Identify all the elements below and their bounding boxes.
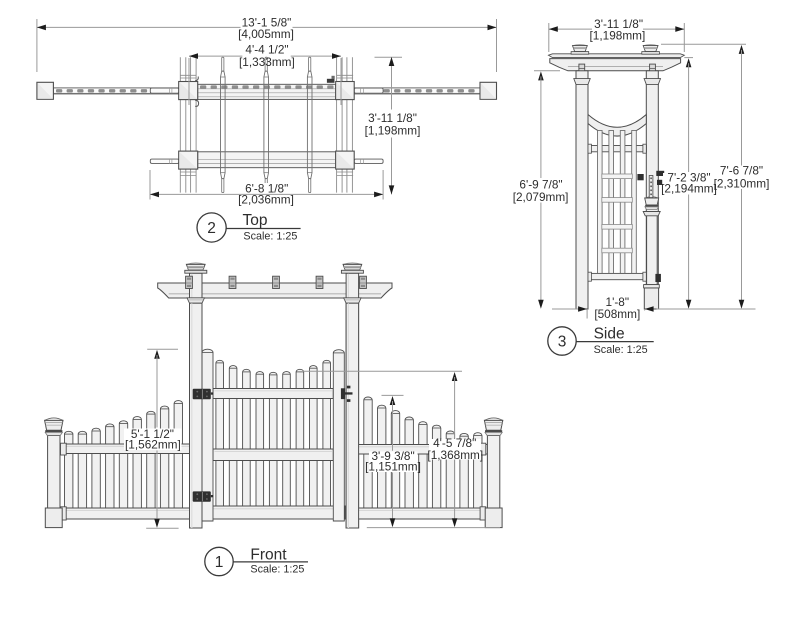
svg-text:[2,079mm]: [2,079mm] <box>513 190 569 204</box>
svg-text:Scale: 1:25: Scale: 1:25 <box>243 230 297 242</box>
svg-text:[1,333mm]: [1,333mm] <box>239 55 295 69</box>
svg-text:[2,194mm]: [2,194mm] <box>661 182 717 196</box>
svg-text:3: 3 <box>558 334 567 351</box>
svg-text:Scale: 1:25: Scale: 1:25 <box>250 564 304 576</box>
svg-text:2: 2 <box>207 220 216 237</box>
svg-text:[1,198mm]: [1,198mm] <box>590 28 646 42</box>
svg-text:1: 1 <box>215 554 224 571</box>
svg-text:Scale: 1:25: Scale: 1:25 <box>594 344 648 356</box>
svg-text:[1,368mm]: [1,368mm] <box>427 448 483 462</box>
svg-text:Top: Top <box>243 212 268 229</box>
svg-text:[1,562mm]: [1,562mm] <box>125 438 181 452</box>
svg-text:[4,005mm]: [4,005mm] <box>238 27 294 41</box>
svg-text:[2,310mm]: [2,310mm] <box>714 177 770 191</box>
svg-text:Front: Front <box>250 547 287 564</box>
svg-text:7'-6 7/8": 7'-6 7/8" <box>720 164 763 178</box>
svg-text:[508mm]: [508mm] <box>594 307 640 321</box>
svg-text:[1,151mm]: [1,151mm] <box>365 460 421 474</box>
svg-text:[2,036mm]: [2,036mm] <box>238 193 294 207</box>
svg-text:Side: Side <box>594 326 625 343</box>
svg-text:[1,198mm]: [1,198mm] <box>365 123 421 137</box>
